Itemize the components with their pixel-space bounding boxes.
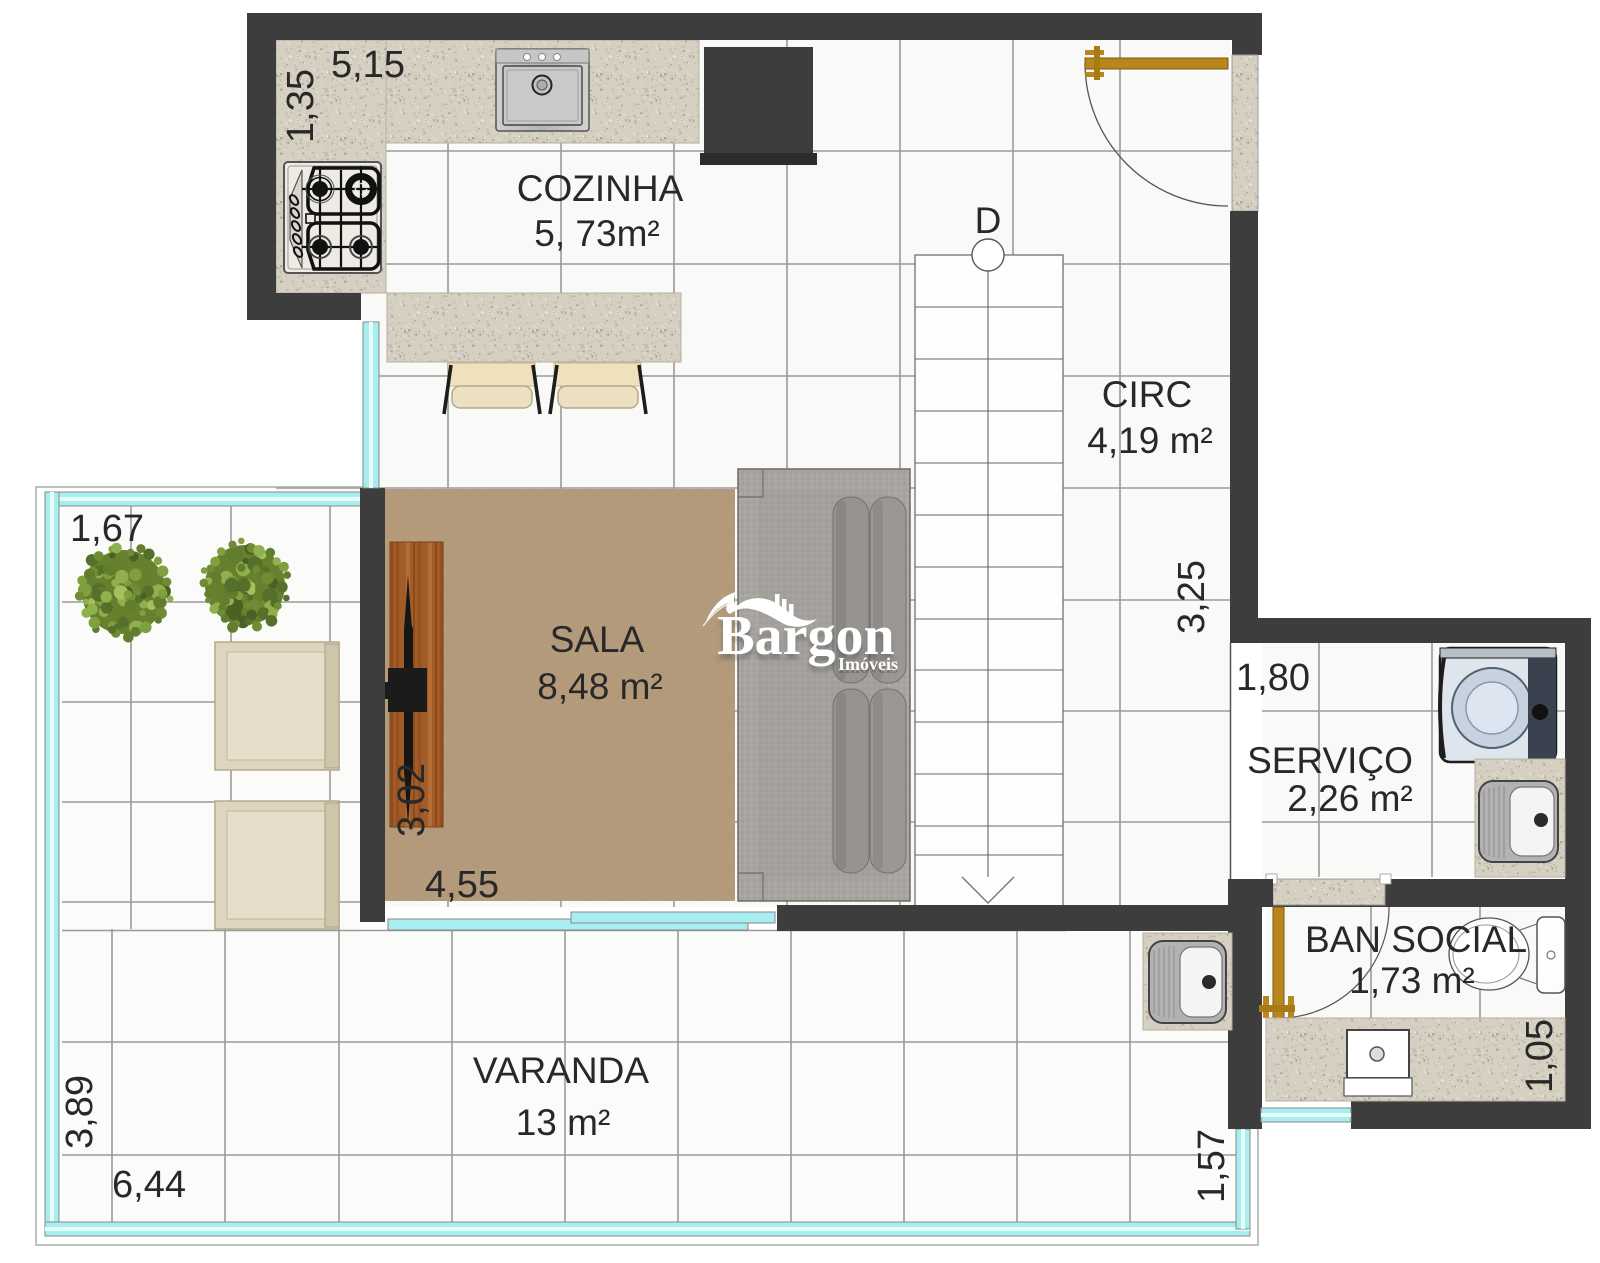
svg-text:6,44: 6,44 [112,1164,186,1206]
svg-text:BAN SOCIAL: BAN SOCIAL [1305,919,1527,960]
svg-text:SERVIÇO: SERVIÇO [1247,740,1413,781]
svg-text:2,26 m²: 2,26 m² [1287,778,1412,819]
svg-text:1,80: 1,80 [1236,657,1310,699]
svg-text:1,57: 1,57 [1191,1129,1233,1203]
svg-text:VARANDA: VARANDA [473,1050,649,1091]
svg-text:1,67: 1,67 [70,508,144,550]
svg-text:3,25: 3,25 [1171,560,1213,634]
svg-text:D: D [975,200,1002,241]
svg-text:3,89: 3,89 [59,1075,101,1149]
svg-text:5, 73m²: 5, 73m² [534,213,659,254]
svg-text:4,55: 4,55 [425,864,499,906]
svg-text:CIRC: CIRC [1102,374,1192,415]
svg-text:1,05: 1,05 [1519,1019,1561,1093]
svg-text:5,15: 5,15 [331,44,405,86]
svg-text:Imóveis: Imóveis [838,654,898,674]
svg-text:8,48 m²: 8,48 m² [537,666,662,707]
svg-text:1,35: 1,35 [280,69,322,143]
svg-text:3,02: 3,02 [391,763,433,837]
svg-text:13 m²: 13 m² [516,1102,611,1143]
svg-text:COZINHA: COZINHA [517,168,684,209]
svg-text:SALA: SALA [550,619,645,660]
svg-text:1,73 m²: 1,73 m² [1349,960,1474,1001]
svg-text:4,19 m²: 4,19 m² [1087,420,1212,461]
